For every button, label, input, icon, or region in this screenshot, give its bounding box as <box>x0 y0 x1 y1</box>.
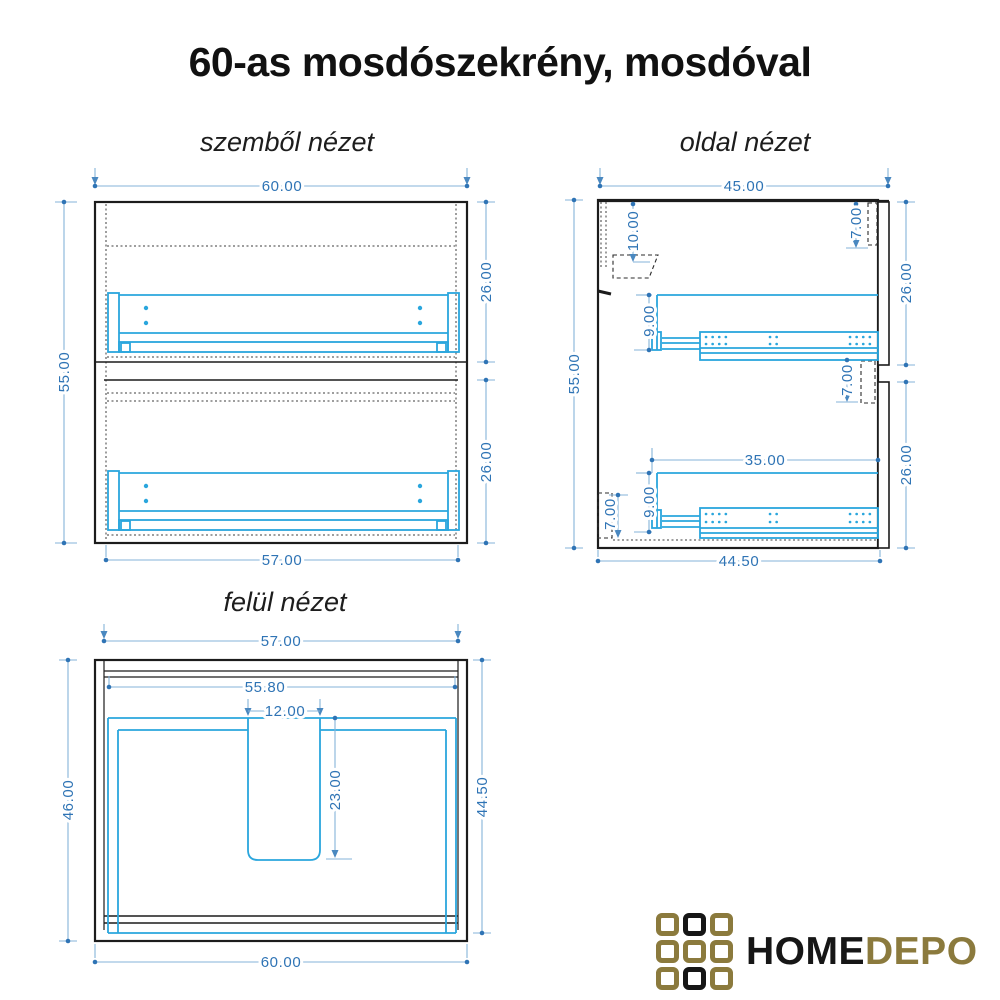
page-title: 60-as mosdószekrény, mosdóval <box>189 39 812 85</box>
logo-text: HOMEDEPO <box>746 930 978 974</box>
logo-square <box>683 913 706 936</box>
dim-top-cutout-width: 12.00 <box>265 703 306 720</box>
logo-square <box>683 940 706 963</box>
dim-front-width-bottom: 57.00 <box>262 552 303 569</box>
technical-drawing-page: 60-as mosdószekrény, mosdóval szemből né… <box>0 0 1000 1000</box>
logo-square <box>710 967 733 990</box>
logo-text-depo: DEPO <box>865 930 978 973</box>
dim-side-front-lower: 26.00 <box>898 445 915 486</box>
logo-square <box>656 940 679 963</box>
drawing-canvas: 60-as mosdószekrény, mosdóval szemből né… <box>0 0 1000 1000</box>
side-view-label: oldal nézet <box>680 127 812 157</box>
dim-side-front-overlap-top: 7.00 <box>848 207 865 239</box>
logo-square <box>683 967 706 990</box>
dim-side-rail-height-lower: 9.00 <box>641 486 658 518</box>
dim-side-depth-bottom: 44.50 <box>719 553 760 570</box>
side-view-drawing: 45.00 55.00 10.00 7.00 26.00 9 <box>565 168 915 570</box>
dim-front-width-top: 60.00 <box>262 178 303 195</box>
lower-drawer-front-panel <box>878 382 889 548</box>
dim-front-height: 55.00 <box>56 352 73 393</box>
dim-top-depth-right: 44.50 <box>474 777 491 818</box>
dim-side-height: 55.00 <box>566 354 583 395</box>
dim-front-drawer-lower: 26.00 <box>478 442 495 483</box>
homedepo-logo: HOMEDEPO <box>656 913 978 990</box>
dim-top-width-inner: 55.80 <box>245 679 286 696</box>
logo-square <box>710 940 733 963</box>
cabinet-outline-front <box>95 202 467 543</box>
dim-side-front-upper: 26.00 <box>898 263 915 304</box>
dim-top-depth-left: 46.00 <box>60 780 77 821</box>
top-view-label: felül nézet <box>223 587 348 617</box>
upper-drawer-front-panel <box>878 202 889 365</box>
dim-front-drawer-upper: 26.00 <box>478 262 495 303</box>
logo-square <box>710 913 733 936</box>
dim-side-rail-height-upper: 9.00 <box>641 305 658 337</box>
logo-text-home: HOME <box>746 930 865 973</box>
dim-side-depth-top: 45.00 <box>724 178 765 195</box>
dim-side-gap-middle: 7.00 <box>839 364 856 396</box>
top-view-drawing: 57.00 55.80 12.00 23.00 46.00 <box>59 624 491 971</box>
logo-grid-icon <box>656 913 733 990</box>
dim-top-cutout-depth: 23.00 <box>327 770 344 811</box>
logo-square <box>656 967 679 990</box>
front-view-drawing: 60.00 55.00 26.00 26.00 57.00 <box>55 168 495 569</box>
dim-side-rail-length: 35.00 <box>745 452 786 469</box>
dim-top-width-bottom: 60.00 <box>261 954 302 971</box>
dim-side-plinth: 7.00 <box>602 498 619 530</box>
dim-top-width-top: 57.00 <box>261 633 302 650</box>
dim-side-bracket-offset: 10.00 <box>625 211 642 252</box>
logo-square <box>656 913 679 936</box>
front-view-label: szemből nézet <box>200 127 376 157</box>
